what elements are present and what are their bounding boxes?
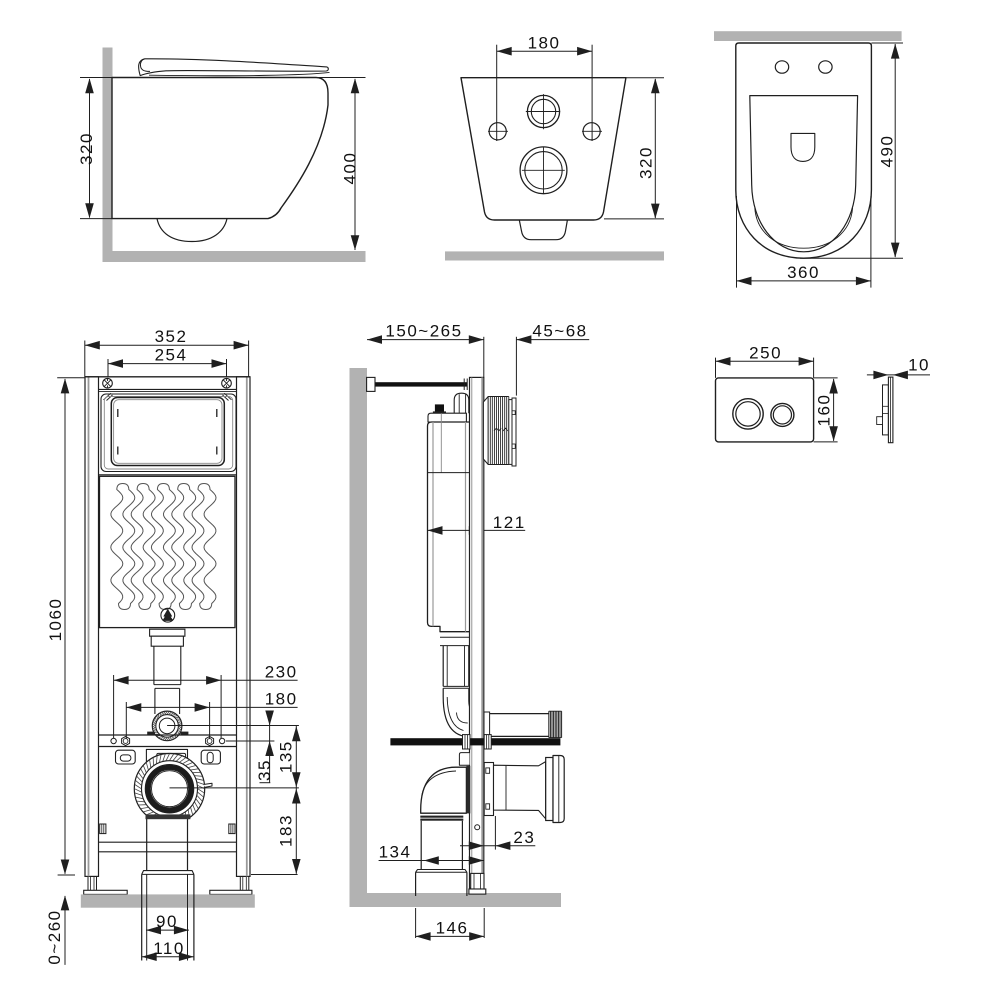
svg-text:134: 134 xyxy=(379,843,412,862)
svg-text:400: 400 xyxy=(340,152,359,185)
svg-text:230: 230 xyxy=(265,662,298,681)
svg-text:35: 35 xyxy=(255,759,274,781)
svg-text:183: 183 xyxy=(276,814,295,847)
svg-text:180: 180 xyxy=(528,33,561,52)
svg-text:146: 146 xyxy=(436,919,469,938)
svg-text:10: 10 xyxy=(908,356,930,375)
svg-text:320: 320 xyxy=(637,146,656,179)
svg-text:352: 352 xyxy=(155,327,188,346)
svg-text:490: 490 xyxy=(878,135,897,168)
svg-text:250: 250 xyxy=(749,343,782,362)
svg-text:23: 23 xyxy=(513,828,535,847)
svg-text:121: 121 xyxy=(493,513,526,532)
svg-text:90: 90 xyxy=(156,912,178,931)
svg-text:0~260: 0~260 xyxy=(45,909,64,964)
svg-text:180: 180 xyxy=(265,690,298,709)
svg-text:360: 360 xyxy=(787,263,820,282)
svg-text:320: 320 xyxy=(77,132,96,165)
svg-text:135: 135 xyxy=(276,740,295,773)
svg-text:160: 160 xyxy=(815,394,834,427)
svg-text:254: 254 xyxy=(155,345,188,364)
svg-text:1060: 1060 xyxy=(46,598,65,642)
svg-text:110: 110 xyxy=(153,939,185,958)
svg-text:150~265: 150~265 xyxy=(385,322,462,341)
svg-text:45~68: 45~68 xyxy=(532,322,587,341)
